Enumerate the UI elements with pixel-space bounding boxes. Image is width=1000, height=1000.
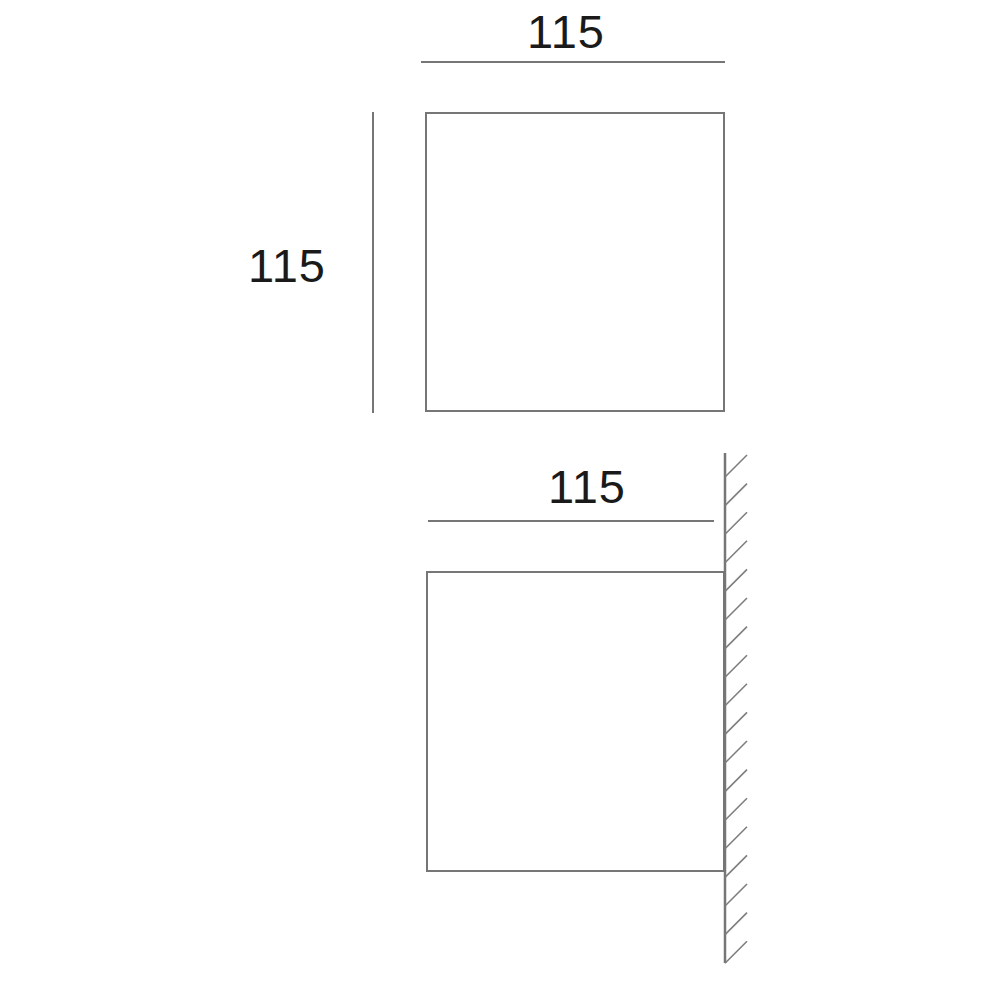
front-view-outline (426, 113, 724, 411)
front-width-label: 115 (527, 8, 605, 55)
wall-hatch-stroke (725, 855, 747, 877)
wall-hatch-stroke (725, 884, 747, 906)
wall-hatch-stroke (725, 484, 747, 506)
front-height-label: 115 (248, 242, 326, 289)
wall-hatch-stroke (725, 941, 747, 963)
wall-hatch-stroke (725, 598, 747, 620)
side-view-outline (427, 572, 724, 871)
dimension-diagram: 115 115 115 (0, 0, 1000, 1000)
wall-hatch-stroke (725, 455, 747, 477)
wall-hatch-stroke (725, 655, 747, 677)
wall-hatch-stroke (725, 741, 747, 763)
wall-hatch-stroke (725, 541, 747, 563)
wall-hatch-stroke (725, 627, 747, 649)
wall-hatch-stroke (725, 913, 747, 935)
wall-hatch-stroke (725, 569, 747, 591)
side-width-label: 115 (548, 463, 626, 510)
wall-hatch-stroke (725, 827, 747, 849)
wall-hatch-stroke (725, 512, 747, 534)
wall-hatching (725, 455, 747, 963)
wall-hatch-stroke (725, 798, 747, 820)
diagram-drawing (0, 0, 1000, 1000)
wall-hatch-stroke (725, 712, 747, 734)
wall-hatch-stroke (725, 684, 747, 706)
wall-hatch-stroke (725, 770, 747, 792)
